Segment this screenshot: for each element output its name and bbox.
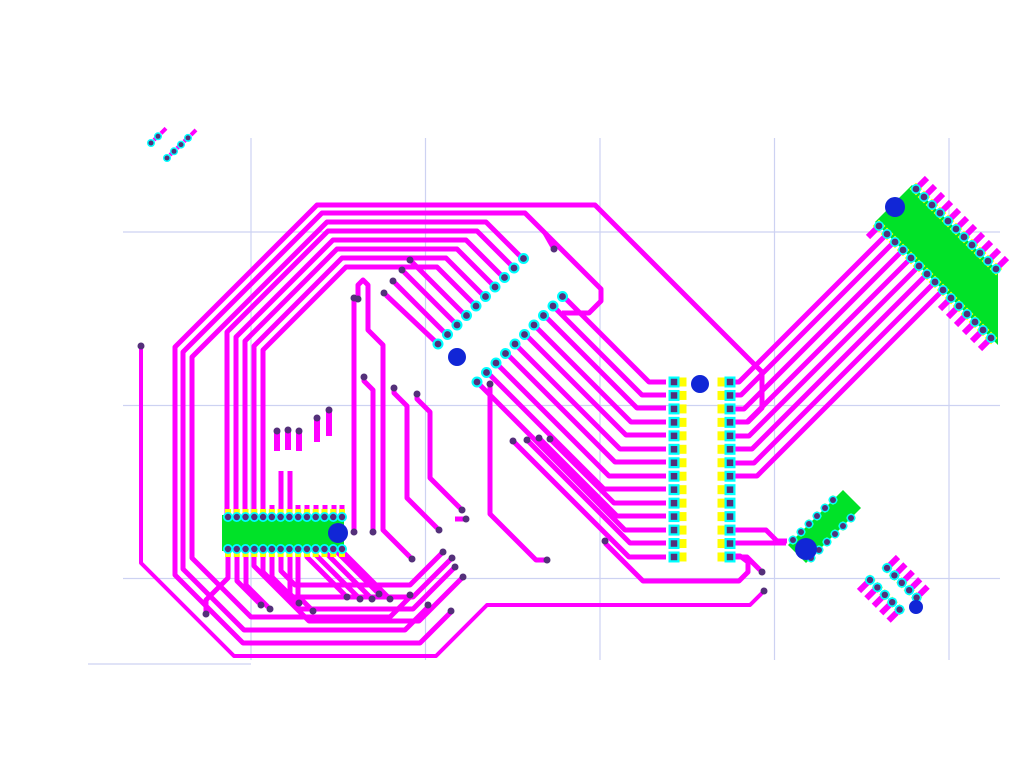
- drill-hole: [924, 271, 931, 278]
- via-hole: [448, 608, 455, 615]
- drill-hole: [286, 546, 292, 552]
- drill-hole: [313, 546, 319, 552]
- drill-hole: [916, 263, 923, 270]
- drill-hole: [874, 584, 880, 590]
- drill-hole: [671, 433, 678, 440]
- drill-hole: [463, 312, 470, 319]
- drill-hole: [234, 514, 240, 520]
- via-hole: [409, 556, 416, 563]
- via-hole: [310, 608, 317, 615]
- drill-hole: [234, 546, 240, 552]
- via-hole: [258, 602, 265, 609]
- pad-stub: [935, 194, 943, 202]
- drill-hole: [727, 392, 734, 399]
- drill-hole: [727, 406, 734, 413]
- drill-hole: [727, 540, 734, 547]
- drill-hole: [727, 473, 734, 480]
- drill-hole: [225, 546, 231, 552]
- pin1-corner-conn: [909, 600, 923, 614]
- drill-hole: [444, 331, 451, 338]
- drill-hole: [304, 514, 310, 520]
- drill-hole: [822, 505, 828, 511]
- pad-stub: [859, 583, 867, 591]
- drill-hole: [671, 446, 678, 453]
- drill-hole: [964, 311, 971, 318]
- drill-hole: [727, 554, 734, 561]
- via-hole: [390, 278, 397, 285]
- drill-hole: [512, 341, 519, 348]
- via-hole: [391, 385, 398, 392]
- drill-hole: [884, 565, 890, 571]
- copper-trace: [364, 378, 373, 531]
- drill-hole: [727, 419, 734, 426]
- drill-hole: [889, 599, 895, 605]
- drill-hole: [474, 379, 481, 386]
- drill-hole: [313, 514, 319, 520]
- drill-hole: [830, 497, 836, 503]
- pad-stub: [956, 317, 964, 325]
- via-hole: [536, 435, 543, 442]
- drill-hole: [493, 360, 500, 367]
- pcb-layout-drawing[interactable]: [0, 0, 1024, 768]
- via-hole: [357, 596, 364, 603]
- drill-hole: [483, 369, 490, 376]
- drill-hole: [321, 514, 327, 520]
- drill-hole: [921, 194, 928, 201]
- drill-hole: [929, 202, 936, 209]
- drill-hole: [277, 514, 283, 520]
- drill-hole: [977, 250, 984, 257]
- pad-stub: [868, 229, 876, 237]
- drill-hole: [295, 546, 301, 552]
- pad-stub: [889, 613, 897, 621]
- drill-hole: [988, 335, 995, 342]
- drill-hole: [304, 546, 310, 552]
- drill-hole: [321, 546, 327, 552]
- drill-hole: [521, 331, 528, 338]
- drill-hole: [269, 514, 275, 520]
- drill-hole: [502, 350, 509, 357]
- drill-hole: [186, 135, 191, 140]
- drill-hole: [848, 515, 854, 521]
- drill-hole: [948, 295, 955, 302]
- drill-hole: [671, 473, 678, 480]
- pad-stub: [943, 202, 951, 210]
- via-hole: [361, 374, 368, 381]
- drill-hole: [727, 486, 734, 493]
- pad-stub: [940, 301, 948, 309]
- drill-hole: [790, 537, 796, 543]
- drill-hole: [969, 242, 976, 249]
- drill-hole: [727, 379, 734, 386]
- pad-stub: [959, 218, 967, 226]
- drill-hole: [961, 234, 968, 241]
- drill-hole: [550, 303, 557, 310]
- drill-hole: [940, 287, 947, 294]
- pad-stub: [881, 605, 889, 613]
- drill-hole: [906, 587, 912, 593]
- pin1-header: [691, 375, 709, 393]
- via-hole: [440, 549, 447, 556]
- via-hole: [138, 343, 145, 350]
- drill-hole: [806, 521, 812, 527]
- via-hole: [376, 591, 383, 598]
- via-hole: [351, 529, 358, 536]
- drill-hole: [900, 247, 907, 254]
- drill-hole: [511, 265, 518, 272]
- drill-hole: [520, 255, 527, 262]
- pad-stub: [972, 333, 980, 341]
- via-hole: [407, 257, 414, 264]
- pad-stub: [912, 579, 920, 587]
- pad-stub: [890, 557, 898, 565]
- drill-hole: [840, 523, 846, 529]
- via-hole: [369, 596, 376, 603]
- pad-stub: [980, 341, 988, 349]
- via-hole: [355, 296, 362, 303]
- drill-hole: [727, 446, 734, 453]
- via-hole: [449, 555, 456, 562]
- pad-stub: [866, 590, 874, 598]
- drill-hole: [908, 255, 915, 262]
- drill-hole: [932, 279, 939, 286]
- drill-hole: [913, 186, 920, 193]
- drill-hole: [286, 514, 292, 520]
- via-hole: [544, 557, 551, 564]
- via-hole: [285, 427, 292, 434]
- drill-hole: [540, 312, 547, 319]
- drill-hole: [993, 266, 1000, 273]
- drill-hole: [891, 572, 897, 578]
- via-hole: [407, 592, 414, 599]
- pad-stub: [975, 234, 983, 242]
- via-hole: [460, 574, 467, 581]
- drill-hole: [330, 514, 336, 520]
- drill-hole: [330, 546, 336, 552]
- pcb-viewer-canvas[interactable]: [0, 0, 1024, 768]
- drill-hole: [876, 223, 883, 230]
- drill-hole: [277, 546, 283, 552]
- pad-stub: [927, 186, 935, 194]
- via-hole: [381, 290, 388, 297]
- via-hole: [759, 569, 766, 576]
- drill-hole: [882, 592, 888, 598]
- drill-hole: [671, 406, 678, 413]
- drill-hole: [727, 500, 734, 507]
- pad-stub: [999, 258, 1007, 266]
- drill-hole: [937, 210, 944, 217]
- via-hole: [314, 415, 321, 422]
- via-hole: [344, 594, 351, 601]
- drill-hole: [165, 156, 170, 161]
- pad-stub: [161, 128, 166, 133]
- copper-trace: [358, 280, 410, 557]
- via-hole: [326, 407, 333, 414]
- drill-hole: [727, 513, 734, 520]
- drill-hole: [435, 341, 442, 348]
- drill-hole: [899, 580, 905, 586]
- drill-hole: [671, 460, 678, 467]
- drill-hole: [149, 141, 154, 146]
- drill-hole: [896, 606, 902, 612]
- via-hole: [551, 246, 558, 253]
- drill-hole: [179, 142, 184, 147]
- pad-stub: [919, 178, 927, 186]
- drill-hole: [269, 546, 275, 552]
- via-hole: [436, 527, 443, 534]
- via-hole: [267, 606, 274, 613]
- drill-hole: [798, 529, 804, 535]
- drill-hole: [980, 327, 987, 334]
- copper-trace: [733, 530, 787, 541]
- via-hole: [425, 602, 432, 609]
- pin1-dip-ic: [328, 523, 348, 543]
- drill-hole: [727, 527, 734, 534]
- pad-stub: [951, 210, 959, 218]
- pad-stub: [191, 130, 196, 135]
- pad-stub: [967, 226, 975, 234]
- drill-hole: [260, 514, 266, 520]
- drill-hole: [671, 379, 678, 386]
- drill-hole: [727, 460, 734, 467]
- drill-hole: [559, 293, 566, 300]
- drill-hole: [814, 513, 820, 519]
- drill-hole: [225, 514, 231, 520]
- drill-hole: [956, 303, 963, 310]
- pad-stub: [991, 250, 999, 258]
- via-hole: [274, 428, 281, 435]
- drill-hole: [972, 319, 979, 326]
- via-hole: [602, 538, 609, 545]
- drill-hole: [454, 322, 461, 329]
- via-hole: [387, 596, 394, 603]
- via-hole: [296, 428, 303, 435]
- drill-hole: [671, 500, 678, 507]
- drill-hole: [832, 531, 838, 537]
- via-hole: [203, 611, 210, 618]
- drill-hole: [671, 486, 678, 493]
- drill-hole: [295, 514, 301, 520]
- pin1-small-ic: [795, 538, 817, 560]
- drill-hole: [671, 392, 678, 399]
- pin1-connector-center: [448, 348, 466, 366]
- drill-hole: [251, 546, 257, 552]
- copper-trace-layer: [141, 128, 1007, 656]
- via-hole: [414, 391, 421, 398]
- drill-hole: [339, 514, 345, 520]
- pad-stub: [983, 242, 991, 250]
- drill-hole: [339, 546, 345, 552]
- copper-trace: [490, 386, 545, 560]
- drill-hole: [867, 577, 873, 583]
- copper-trace: [545, 233, 553, 247]
- pin1-big-ic: [885, 197, 905, 217]
- drill-hole: [913, 594, 919, 600]
- drill-hole: [492, 284, 499, 291]
- drill-hole: [242, 546, 248, 552]
- drill-hole: [892, 239, 899, 246]
- drill-hole: [671, 554, 678, 561]
- drill-hole: [172, 149, 177, 154]
- drill-hole: [473, 303, 480, 310]
- drill-hole: [824, 539, 830, 545]
- via-hole: [452, 564, 459, 571]
- drill-hole: [260, 546, 266, 552]
- drill-hole: [251, 514, 257, 520]
- via-hole: [370, 529, 377, 536]
- via-hole: [524, 437, 531, 444]
- drill-hole: [953, 226, 960, 233]
- pad-stub: [897, 564, 905, 572]
- drill-hole: [671, 540, 678, 547]
- drill-hole: [482, 293, 489, 300]
- pad-stub: [964, 325, 972, 333]
- drill-hole: [884, 231, 891, 238]
- drill-hole: [501, 274, 508, 281]
- drill-hole: [671, 419, 678, 426]
- via-hole: [399, 267, 406, 274]
- pad-stub: [920, 587, 928, 595]
- drill-hole: [531, 322, 538, 329]
- drill-hole: [945, 218, 952, 225]
- pad-stub: [874, 598, 882, 606]
- via-hole: [296, 600, 303, 607]
- drill-hole: [671, 527, 678, 534]
- drill-hole: [242, 514, 248, 520]
- via-hole: [547, 436, 554, 443]
- drill-hole: [671, 513, 678, 520]
- via-hole: [459, 507, 466, 514]
- copper-trace: [417, 396, 460, 508]
- via-hole: [463, 516, 470, 523]
- drill-hole: [156, 134, 161, 139]
- via-hole: [510, 438, 517, 445]
- via-hole: [487, 381, 494, 388]
- drill-hole: [727, 433, 734, 440]
- drill-hole: [985, 258, 992, 265]
- via-hole: [761, 588, 768, 595]
